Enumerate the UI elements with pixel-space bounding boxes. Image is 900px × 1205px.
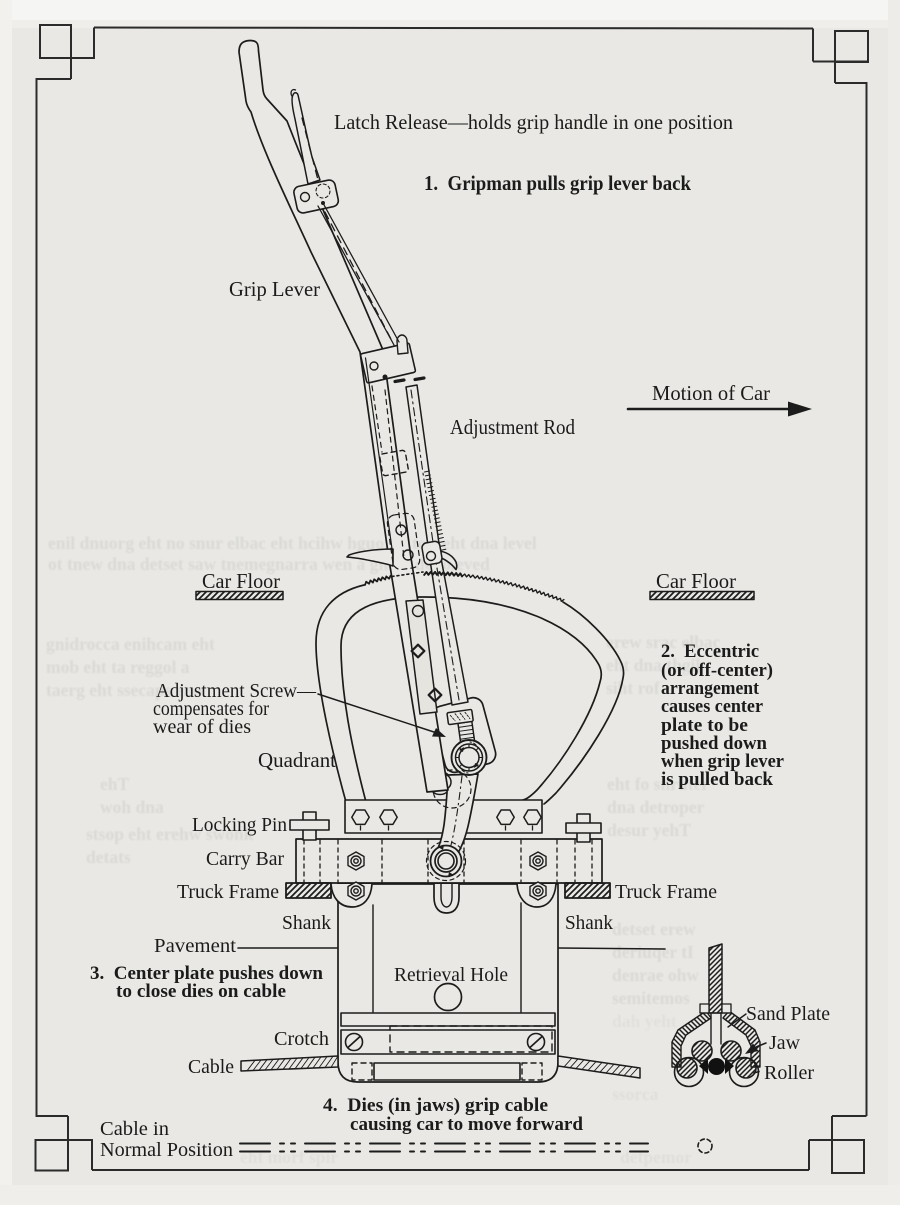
svg-text:Carry Bar: Carry Bar xyxy=(206,848,284,870)
svg-text:Quadrant: Quadrant xyxy=(258,748,336,772)
svg-text:Grip Lever: Grip Lever xyxy=(229,277,320,301)
svg-text:gnidrocca enihcam eht: gnidrocca enihcam eht xyxy=(46,634,215,654)
svg-text:Crotch: Crotch xyxy=(274,1028,329,1050)
svg-text:Cable in: Cable in xyxy=(100,1119,169,1140)
svg-text:dah yeht: dah yeht xyxy=(612,1011,677,1031)
svg-text:2. Eccentric: 2. Eccentric xyxy=(661,642,759,662)
svg-text:to close dies on cable: to close dies on cable xyxy=(116,982,286,1002)
svg-text:ssorca: ssorca xyxy=(612,1084,659,1104)
svg-text:Shank: Shank xyxy=(565,912,613,934)
svg-text:Shank: Shank xyxy=(282,912,331,934)
svg-text:dna detroper: dna detroper xyxy=(607,797,705,817)
svg-text:detats: detats xyxy=(86,847,131,867)
svg-text:Truck Frame: Truck Frame xyxy=(177,881,279,903)
svg-text:mob eht ta reggol a: mob eht ta reggol a xyxy=(46,657,190,677)
svg-text:Jaw: Jaw xyxy=(769,1032,801,1054)
svg-text:siht rof: siht rof xyxy=(606,678,660,698)
svg-text:Latch Release—holds grip handl: Latch Release—holds grip handle in one p… xyxy=(334,110,733,134)
svg-text:eht morf spir: eht morf spir xyxy=(240,1147,338,1167)
svg-text:is pulled back: is pulled back xyxy=(661,770,774,790)
svg-text:detset erew: detset erew xyxy=(612,919,696,939)
svg-text:Truck Frame: Truck Frame xyxy=(615,881,717,903)
svg-text:Car Floor: Car Floor xyxy=(202,569,280,593)
svg-text:Sand Plate: Sand Plate xyxy=(746,1003,830,1025)
svg-text:deriuqer tI: deriuqer tI xyxy=(612,942,694,962)
svg-text:enil dnuorg eht no snur elbac: enil dnuorg eht no snur elbac eht hcihw … xyxy=(48,533,537,553)
svg-text:Car Floor: Car Floor xyxy=(656,569,736,593)
svg-text:causes center: causes center xyxy=(661,697,763,717)
svg-text:1. Gripman pulls grip lever b: 1. Gripman pulls grip lever back xyxy=(424,171,691,195)
svg-text:Retrieval Hole: Retrieval Hole xyxy=(394,964,508,986)
svg-text:Roller: Roller xyxy=(764,1062,814,1084)
svg-text:when grip lever: when grip lever xyxy=(661,752,784,772)
svg-text:Motion of Car: Motion of Car xyxy=(652,381,770,405)
svg-text:Pavement: Pavement xyxy=(154,935,236,957)
svg-text:3. Center plate pushes down: 3. Center plate pushes down xyxy=(90,964,324,984)
svg-text:wear of dies: wear of dies xyxy=(153,717,251,738)
svg-text:plate to be: plate to be xyxy=(661,716,748,736)
svg-text:detpemor: detpemor xyxy=(620,1147,692,1167)
svg-text:arrangement: arrangement xyxy=(661,679,760,699)
svg-text:semitemos: semitemos xyxy=(612,988,690,1008)
svg-text:Cable: Cable xyxy=(188,1056,234,1078)
svg-text:ehT: ehT xyxy=(100,774,130,794)
svg-text:causing car to move forward: causing car to move forward xyxy=(350,1115,584,1135)
svg-text:denrae ohw: denrae ohw xyxy=(612,965,699,985)
svg-text:4. Dies (in jaws) grip cable: 4. Dies (in jaws) grip cable xyxy=(323,1096,548,1116)
svg-text:pushed down: pushed down xyxy=(661,734,768,754)
svg-text:Normal Position: Normal Position xyxy=(100,1140,233,1161)
svg-text:Locking Pin: Locking Pin xyxy=(192,814,287,836)
svg-text:Adjustment Rod: Adjustment Rod xyxy=(450,415,575,439)
svg-text:(or off-center): (or off-center) xyxy=(661,661,773,681)
svg-text:woh dna: woh dna xyxy=(100,797,164,817)
svg-text:desur yehT: desur yehT xyxy=(607,820,691,840)
